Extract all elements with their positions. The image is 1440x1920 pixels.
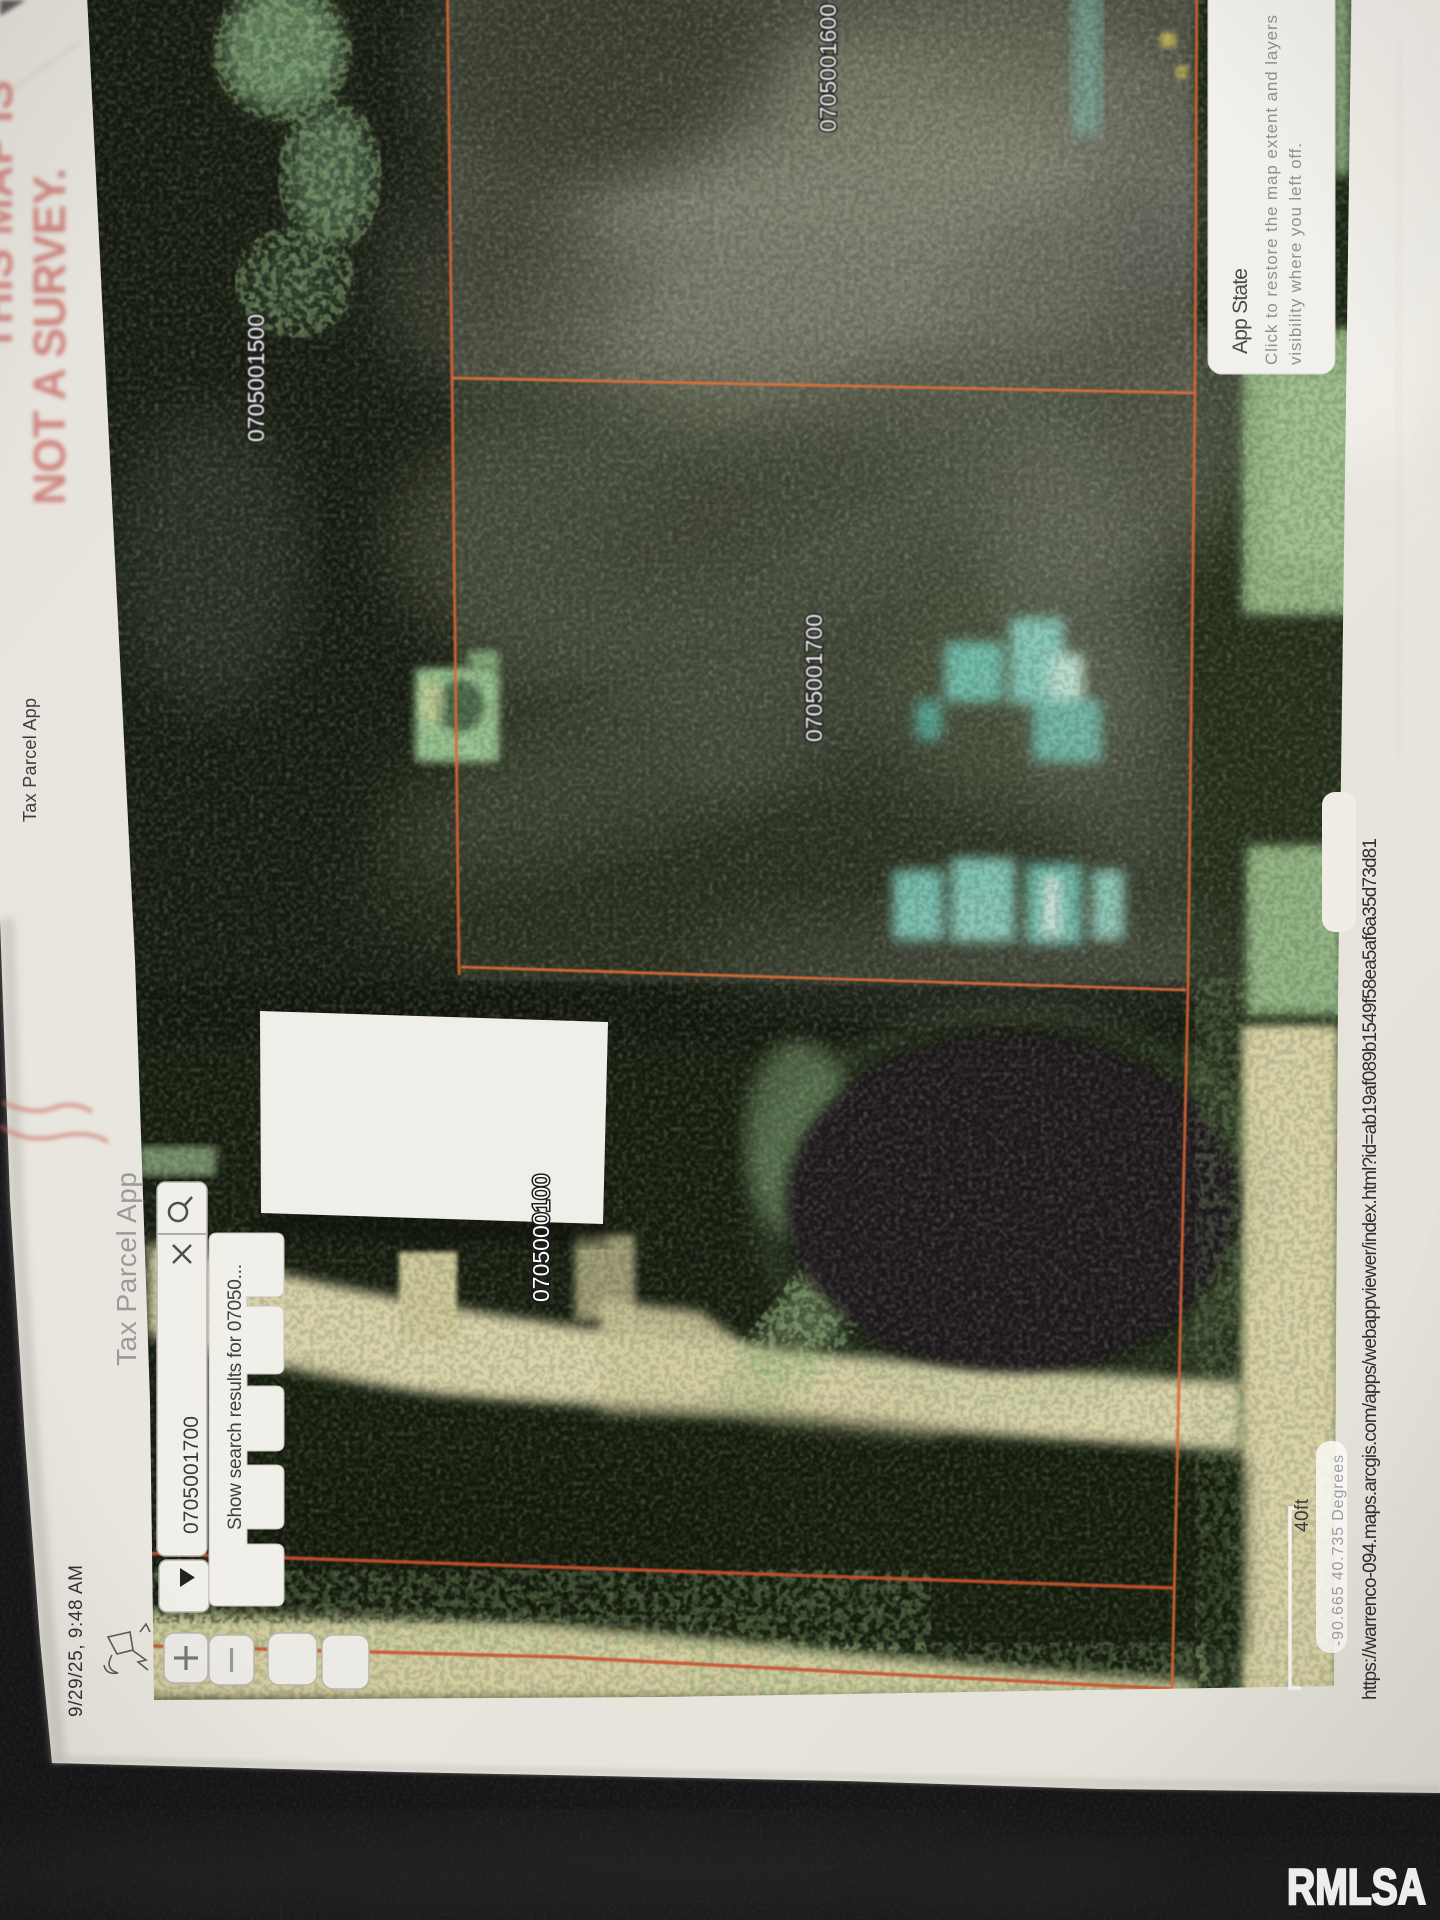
svg-text:RMLSA: RMLSA <box>1287 1859 1426 1915</box>
